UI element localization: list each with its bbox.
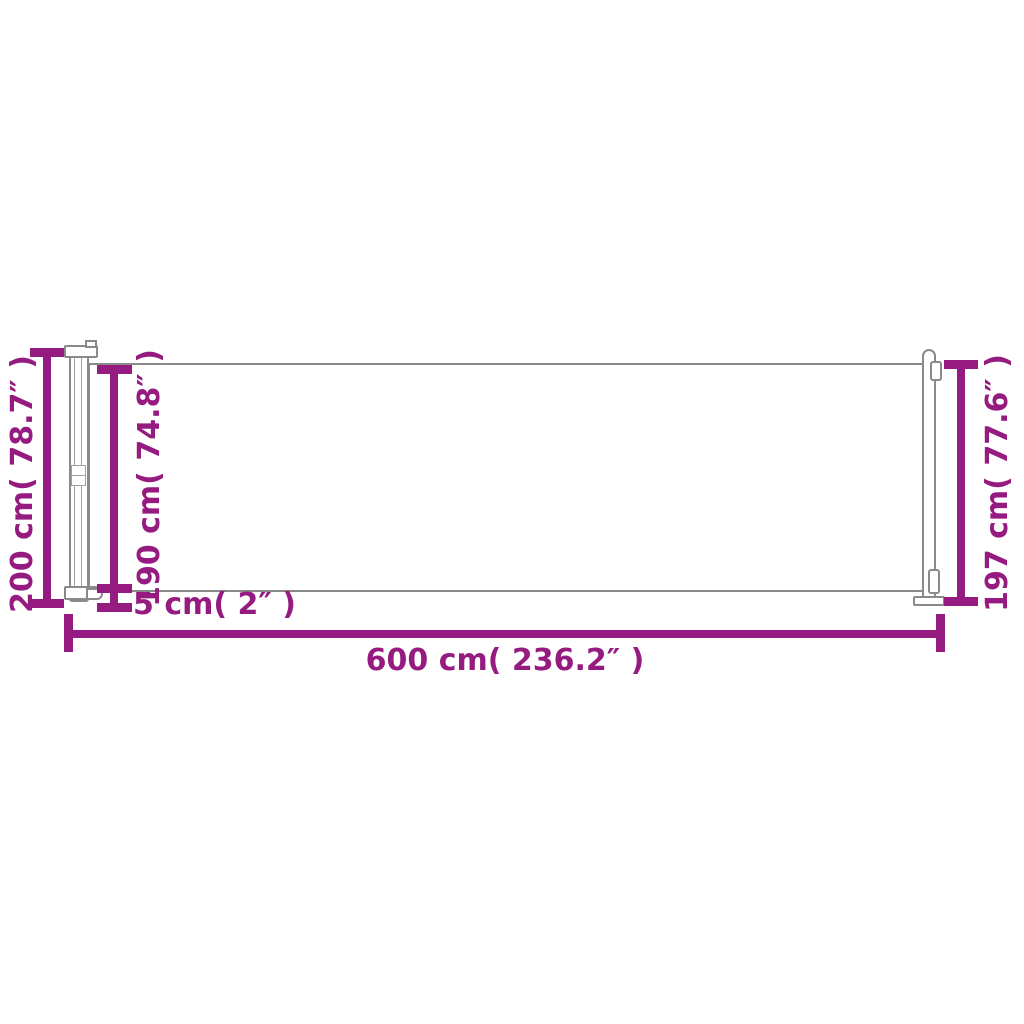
cassette-top-tab [85, 340, 97, 348]
dim-total-width-label: 600 cm( 236.2″ ) [366, 646, 645, 676]
pole-bottom-hook [928, 569, 940, 594]
dim-total-width-cap-left [64, 614, 73, 652]
dim-total-width-line [69, 630, 941, 638]
dim-total-width-cap-right [936, 614, 945, 652]
dim-post-height-cap-bottom [944, 597, 978, 606]
dim-post-height-label: 197 cm( 77.6″ ) [983, 354, 1013, 612]
dim-total-height-line [43, 352, 51, 604]
dim-clearance-cap-bottom [97, 603, 132, 612]
awning-screen [88, 363, 926, 592]
dim-fabric-height-cap-top [97, 365, 132, 374]
cassette-mid-clip-lower [71, 475, 86, 486]
pole-top-hook [930, 361, 942, 381]
awning-dimension-diagram: 200 cm( 78.7″ ) 190 cm( 74.8″ ) 5 cm( 2″… [0, 0, 1024, 1024]
pole-shaft [922, 349, 936, 603]
dim-post-height-line [957, 364, 965, 602]
pole-foot [913, 596, 945, 606]
dim-clearance-label: 5 cm( 2″ ) [133, 590, 296, 620]
dim-total-height-label: 200 cm( 78.7″ ) [8, 355, 38, 613]
dim-post-height-cap-top [944, 360, 978, 369]
dim-fabric-height-label: 190 cm( 74.8″ ) [135, 349, 165, 607]
dim-fabric-height-line [110, 369, 118, 590]
